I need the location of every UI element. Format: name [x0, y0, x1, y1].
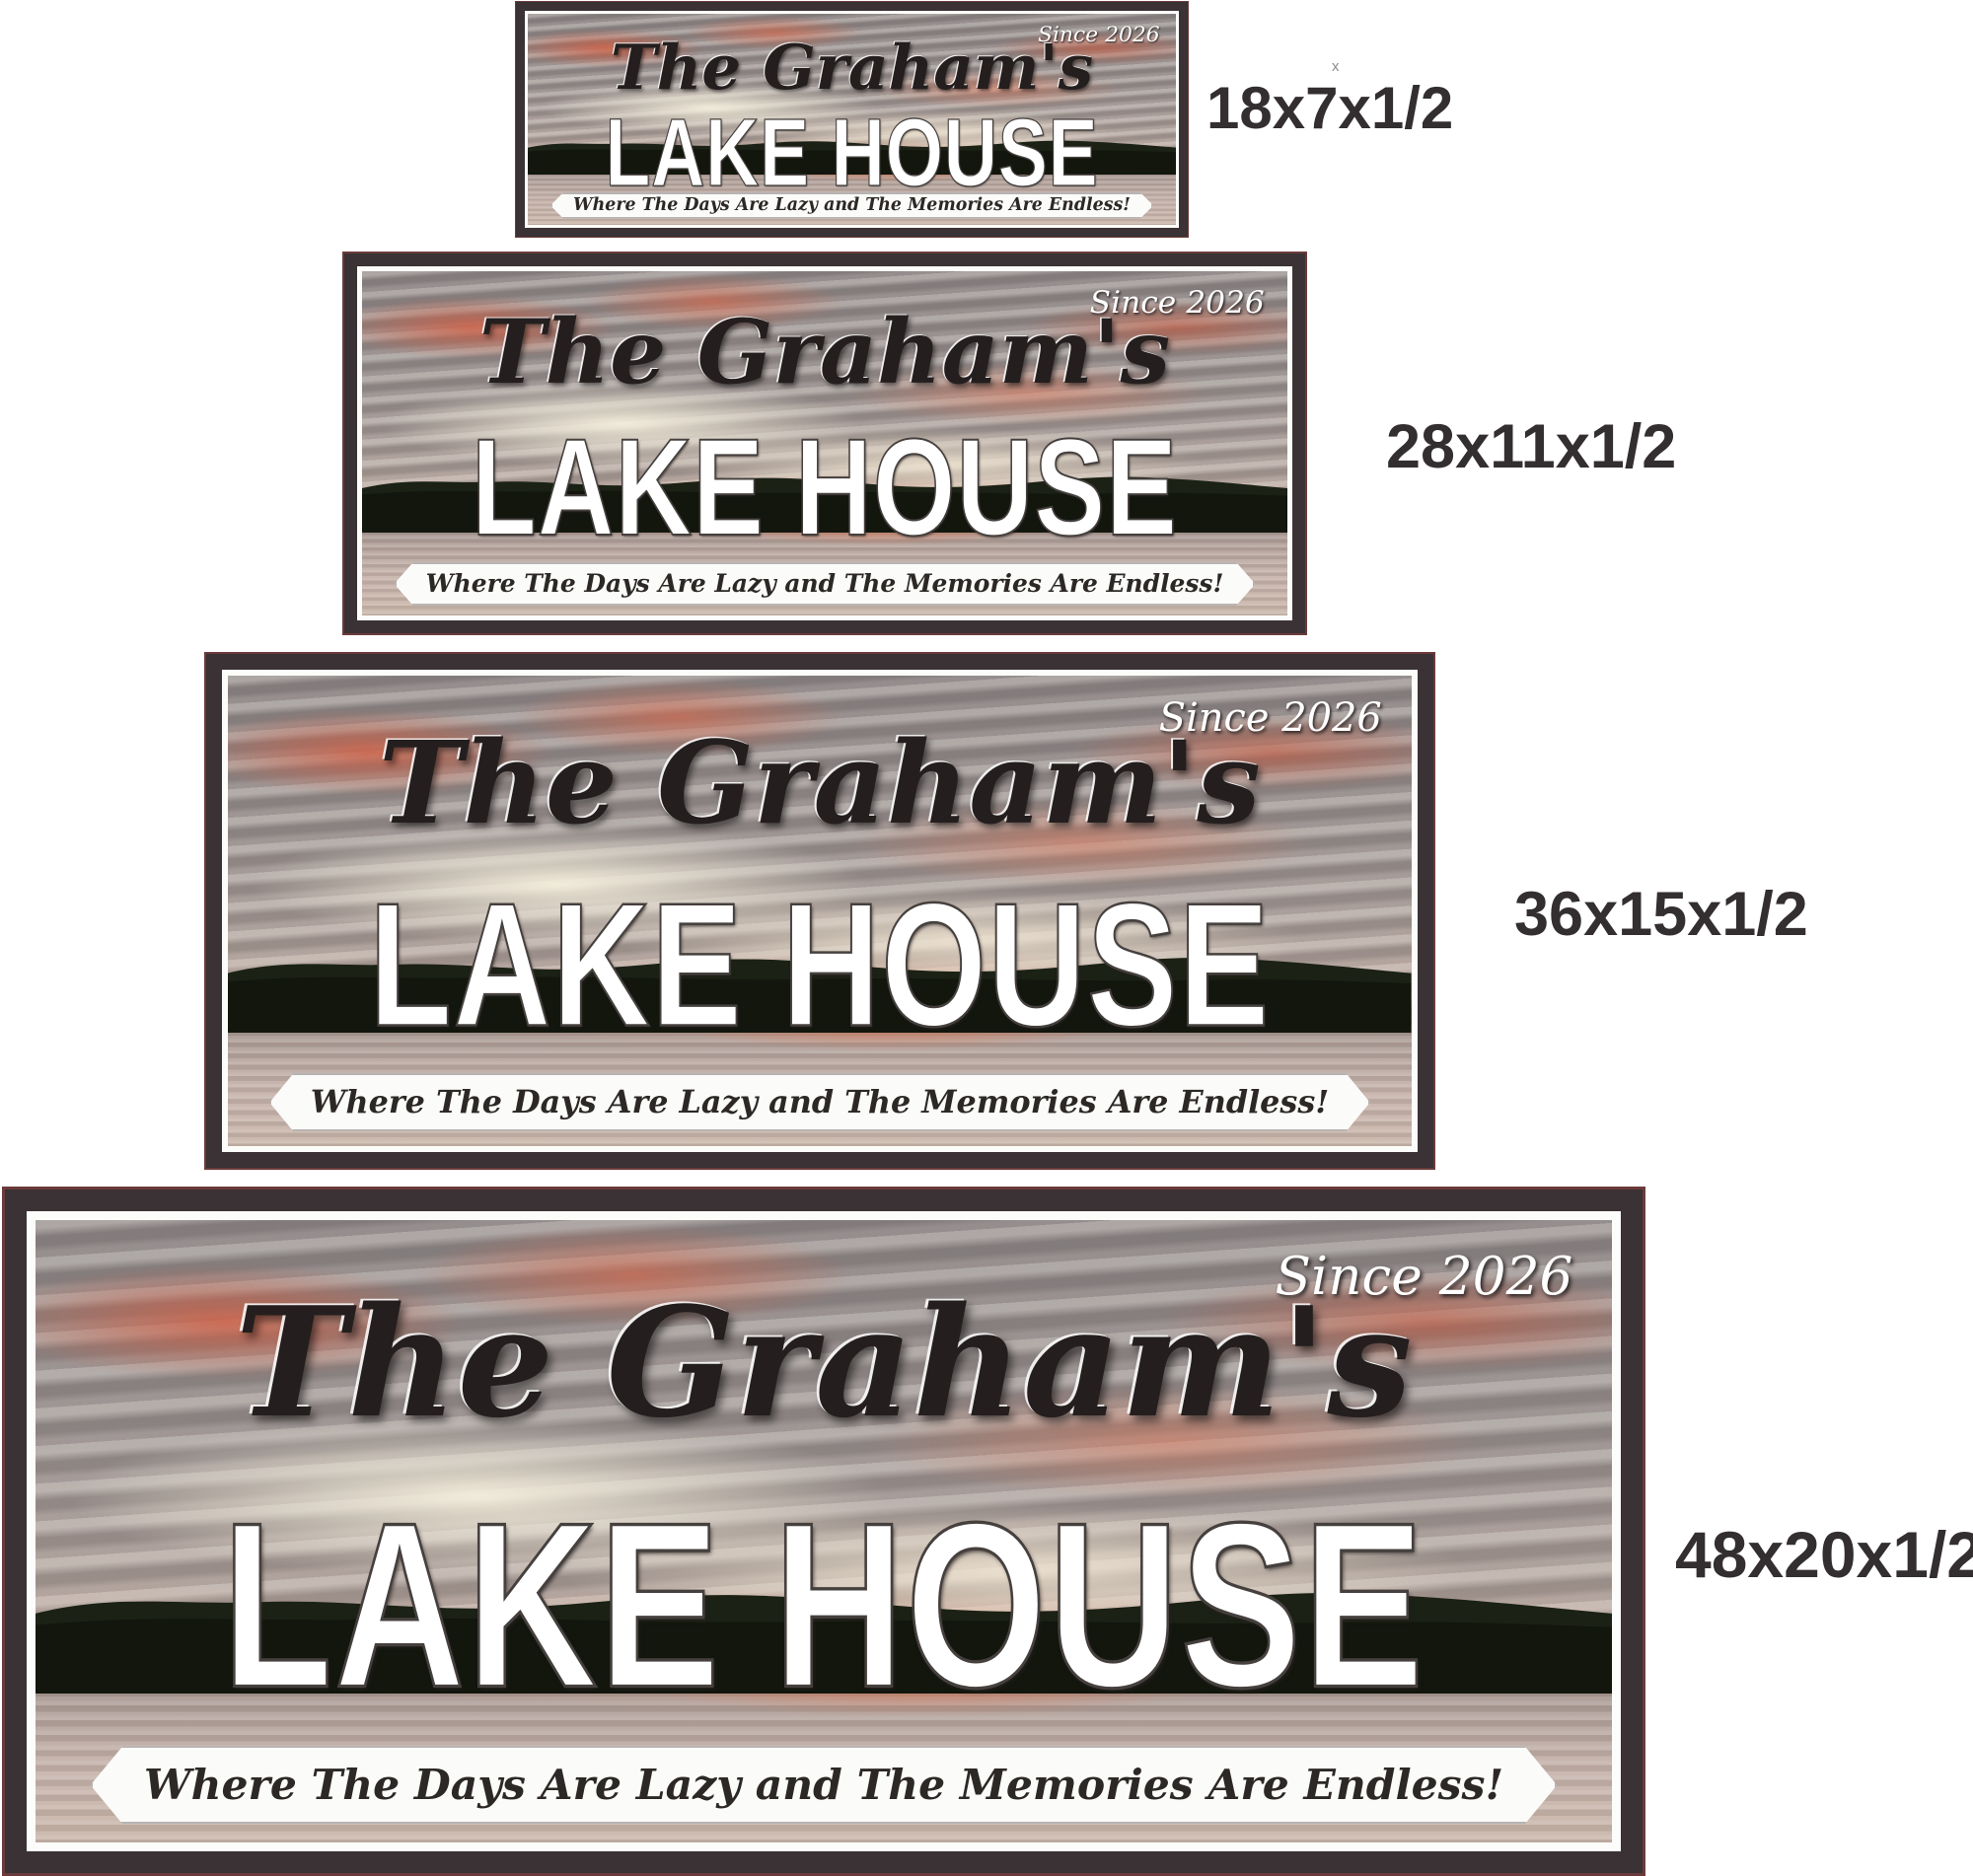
- lake-house-title: LAKE HOUSE: [362, 419, 1288, 557]
- tagline-banner: Where The Days Are Lazy and The Memories…: [269, 1073, 1370, 1132]
- tagline-banner: Where The Days Are Lazy and The Memories…: [91, 1746, 1558, 1824]
- tagline-text: Where The Days Are Lazy and The Memories…: [573, 197, 1131, 214]
- size-label-18x7: 18x7x1/2: [1206, 79, 1453, 138]
- family-name-text: The Graham's: [36, 1288, 1613, 1439]
- tagline-text: Where The Days Are Lazy and The Memories…: [144, 1765, 1503, 1806]
- lake-sunset-photo: Since 2026 The Graham's LAKE HOUSE Where…: [528, 14, 1176, 225]
- sign-white-mat: Since 2026 The Graham's LAKE HOUSE Where…: [357, 266, 1293, 621]
- sign-36x15: Since 2026 The Graham's LAKE HOUSE Where…: [204, 652, 1435, 1170]
- sign-white-mat: Since 2026 The Graham's LAKE HOUSE Where…: [27, 1211, 1622, 1852]
- family-name-text: The Graham's: [528, 36, 1176, 99]
- lake-sunset-photo: Since 2026 The Graham's LAKE HOUSE Where…: [228, 676, 1412, 1146]
- product-collage: Since 2026 The Graham's LAKE HOUSE Where…: [0, 0, 1973, 1876]
- tagline-banner: Where The Days Are Lazy and The Memories…: [550, 192, 1153, 219]
- lake-house-title: LAKE HOUSE: [228, 878, 1412, 1053]
- tagline-text: Where The Days Are Lazy and The Memories…: [311, 1087, 1329, 1118]
- sign-white-mat: Since 2026 The Graham's LAKE HOUSE Where…: [222, 670, 1418, 1152]
- lake-house-title: LAKE HOUSE: [528, 105, 1176, 201]
- tagline-banner: Where The Days Are Lazy and The Memories…: [395, 562, 1256, 606]
- size-label-48x20: 48x20x1/2: [1675, 1522, 1973, 1587]
- lake-house-title: LAKE HOUSE: [36, 1487, 1613, 1722]
- lake-sunset-photo: Since 2026 The Graham's LAKE HOUSE Where…: [362, 271, 1288, 616]
- sign-48x20: Since 2026 The Graham's LAKE HOUSE Where…: [2, 1187, 1645, 1876]
- lake-sunset-photo: Since 2026 The Graham's LAKE HOUSE Where…: [36, 1220, 1613, 1843]
- family-name-text: The Graham's: [228, 728, 1412, 841]
- size-label-36x15: 36x15x1/2: [1514, 884, 1808, 946]
- tagline-text: Where The Days Are Lazy and The Memories…: [426, 572, 1224, 597]
- sign-white-mat: Since 2026 The Graham's LAKE HOUSE Where…: [525, 11, 1179, 228]
- sign-18x7: Since 2026 The Graham's LAKE HOUSE Where…: [515, 1, 1189, 238]
- family-name-text: The Graham's: [362, 309, 1288, 397]
- sign-28x11: Since 2026 The Graham's LAKE HOUSE Where…: [342, 252, 1307, 635]
- size-label-28x11: 28x11x1/2: [1386, 416, 1676, 478]
- stray-x-mark: x: [1332, 59, 1340, 74]
